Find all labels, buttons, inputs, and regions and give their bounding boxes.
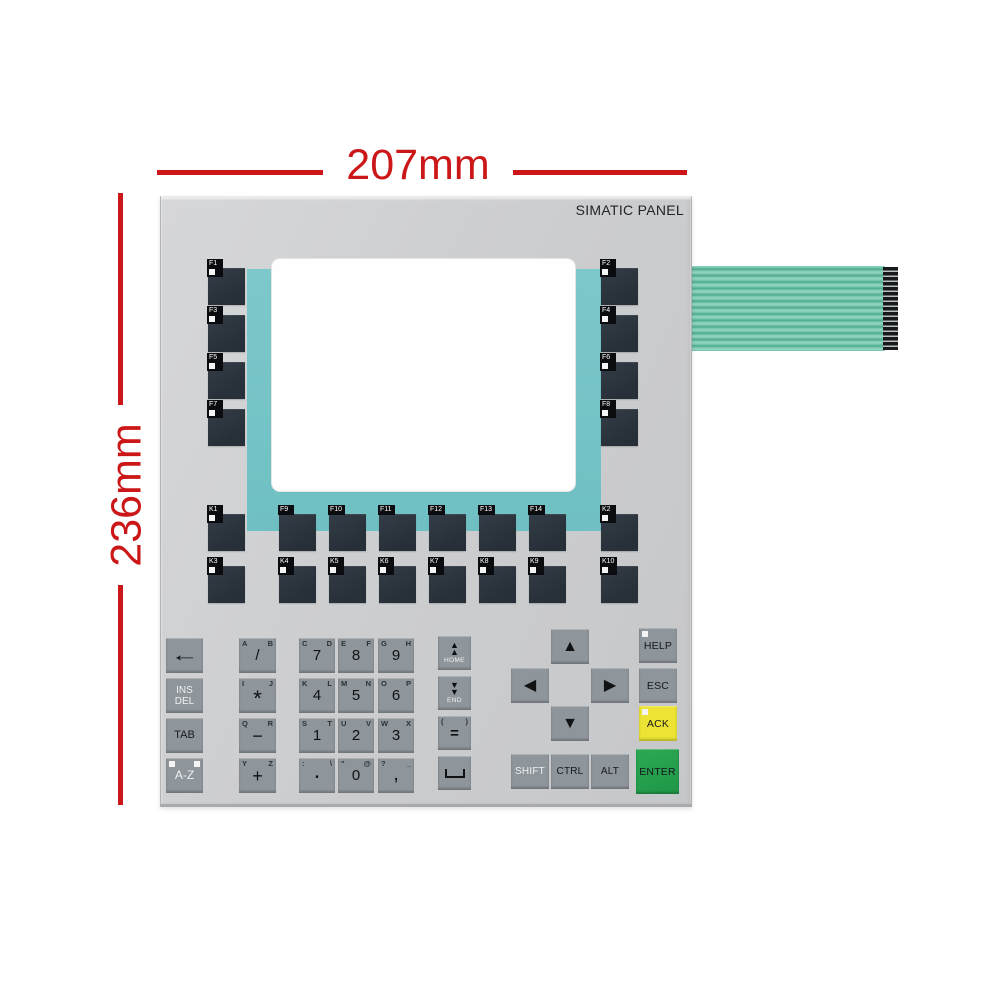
- key-symbol: 9: [392, 648, 400, 663]
- led-indicator-window: [602, 515, 608, 521]
- key-label: F10: [330, 506, 342, 514]
- key-label: K9: [530, 558, 541, 566]
- key-label: K5: [330, 558, 341, 566]
- height-dimension-line-bottom: [118, 585, 123, 805]
- key-label: K10: [602, 558, 614, 566]
- corner-letter: R: [268, 719, 273, 728]
- space-icon: [445, 769, 465, 778]
- key-symbol: .: [314, 759, 321, 783]
- key-label: K2: [602, 506, 613, 514]
- corner-letter: B: [268, 639, 273, 648]
- key-help[interactable]: HELP: [639, 628, 677, 663]
- key-label: K1: [209, 506, 220, 514]
- key-symbol: 3: [392, 728, 400, 743]
- up-triangle-icon: ▲: [562, 639, 578, 655]
- led-indicator-window: [642, 709, 648, 715]
- key-symbol: −: [252, 727, 263, 745]
- corner-letter: U: [341, 719, 346, 728]
- led-indicator-window: [602, 269, 608, 275]
- key-label: INS: [176, 685, 193, 696]
- key-5[interactable]: MN5: [338, 678, 374, 713]
- key-7[interactable]: CD7: [299, 638, 335, 673]
- backspace-arrow-icon: ←: [170, 646, 199, 665]
- key-label-tab: F2: [600, 259, 616, 277]
- down-triangle-icon: ▼: [562, 716, 578, 732]
- key-k8[interactable]: K8: [479, 566, 516, 603]
- key-k6[interactable]: K6: [379, 566, 416, 603]
- key-minus[interactable]: QR−: [239, 718, 276, 753]
- led-indicator-window: [530, 567, 536, 573]
- corner-letter: (: [441, 717, 444, 726]
- key-label: F14: [530, 506, 542, 514]
- key-k5[interactable]: K5: [329, 566, 366, 603]
- led-indicator-window: [169, 761, 175, 767]
- key-label: SHIFT: [515, 766, 545, 777]
- led-indicator-window: [430, 567, 436, 573]
- key-label-tab: F10: [328, 505, 345, 515]
- corner-letter: K: [302, 679, 307, 688]
- key-2[interactable]: UV2: [338, 718, 374, 753]
- corner-letter: Y: [242, 759, 247, 768]
- key-end[interactable]: ▼▼END: [438, 676, 471, 710]
- key-f6[interactable]: F6: [601, 362, 638, 399]
- corner-letter: Q: [242, 719, 248, 728]
- key-f11[interactable]: F11: [379, 514, 416, 551]
- corner-letter: O: [381, 679, 387, 688]
- key-label-tab: F9: [278, 505, 294, 515]
- height-dimension-label: 236mm: [106, 423, 149, 566]
- key-alt[interactable]: ALT: [591, 754, 629, 789]
- led-indicator-window: [194, 761, 200, 767]
- led-indicator-window: [209, 316, 215, 322]
- key-symbol: 4: [313, 688, 321, 703]
- corner-letter: :: [302, 759, 305, 768]
- led-indicator-window: [602, 316, 608, 322]
- key-symbol: +: [252, 767, 263, 785]
- flex-ribbon-cable: [680, 266, 899, 351]
- key-k3[interactable]: K3: [208, 566, 245, 603]
- key-label: F11: [380, 506, 392, 514]
- up-double-arrow-icon: ▲: [450, 649, 459, 656]
- corner-letter: W: [381, 719, 388, 728]
- led-indicator-window: [602, 567, 608, 573]
- corner-letter: E: [341, 639, 346, 648]
- key-label: F9: [280, 506, 291, 514]
- key-symbol: 7: [313, 648, 321, 663]
- key-label-tab: K6: [378, 557, 394, 575]
- key-label-tab: K9: [528, 557, 544, 575]
- led-indicator-window: [209, 515, 215, 521]
- corner-letter: Z: [268, 759, 273, 768]
- key-f5[interactable]: F5: [208, 362, 245, 399]
- key-symbol: 5: [352, 688, 360, 703]
- key-label: K8: [480, 558, 491, 566]
- corner-letter: I: [242, 679, 244, 688]
- corner-letter: _: [407, 759, 411, 768]
- key-k9[interactable]: K9: [529, 566, 566, 603]
- led-indicator-window: [209, 269, 215, 275]
- key-label-tab: F8: [600, 400, 616, 418]
- corner-letter: A: [242, 639, 247, 648]
- key-0[interactable]: "@0: [338, 758, 374, 793]
- key-slash[interactable]: AB/: [239, 638, 276, 673]
- key-label: ENTER: [639, 766, 676, 778]
- key-label-tab: K1: [207, 505, 223, 523]
- key-ins-del[interactable]: INSDEL: [166, 678, 203, 713]
- key-label: F1: [209, 260, 220, 268]
- ribbon-connector-contacts: [883, 267, 898, 350]
- key-shift[interactable]: SHIFT: [511, 754, 549, 789]
- key-label: ACK: [647, 718, 669, 730]
- key-label: ESC: [647, 680, 669, 692]
- key-8[interactable]: EF8: [338, 638, 374, 673]
- led-indicator-window: [209, 410, 215, 416]
- key-equals[interactable]: ()=: [438, 716, 471, 750]
- key-label-tab: F4: [600, 306, 616, 324]
- key-label-tab: F14: [528, 505, 545, 515]
- key-f3[interactable]: F3: [208, 315, 245, 352]
- key-tab[interactable]: TAB: [166, 718, 203, 753]
- key-label: CTRL: [557, 766, 584, 777]
- corner-letter: \: [330, 759, 332, 768]
- key-k4[interactable]: K4: [279, 566, 316, 603]
- key-k2[interactable]: K2: [601, 514, 638, 551]
- right-triangle-icon: ▶: [604, 678, 616, 694]
- led-indicator-window: [209, 567, 215, 573]
- key-label: F6: [602, 354, 613, 362]
- key-label-tab: F7: [207, 400, 223, 418]
- key-label: K4: [280, 558, 291, 566]
- key-label: F12: [430, 506, 442, 514]
- key-k7[interactable]: K7: [429, 566, 466, 603]
- width-dimension-label: 207mm: [328, 144, 508, 187]
- key-f1[interactable]: F1: [208, 268, 245, 305]
- key-f9[interactable]: F9: [279, 514, 316, 551]
- key-label-tab: K8: [478, 557, 494, 575]
- corner-letter: N: [366, 679, 371, 688]
- led-indicator-window: [602, 363, 608, 369]
- key-label-tab: F1: [207, 259, 223, 277]
- key-label-tab: F11: [378, 505, 395, 515]
- key-symbol: 2: [352, 728, 360, 743]
- corner-letter: T: [327, 719, 332, 728]
- corner-letter: G: [381, 639, 387, 648]
- key-asterisk[interactable]: IJ*: [239, 678, 276, 713]
- key-label: F4: [602, 307, 613, 315]
- key-f10[interactable]: F10: [329, 514, 366, 551]
- key-label: TAB: [174, 730, 195, 741]
- key-arrow-down[interactable]: ▼: [551, 706, 589, 741]
- key-label: F2: [602, 260, 613, 268]
- corner-letter: S: [302, 719, 307, 728]
- key-plus[interactable]: YZ+: [239, 758, 276, 793]
- left-triangle-icon: ◀: [524, 678, 536, 694]
- key-label: END: [447, 697, 462, 704]
- key-esc[interactable]: ESC: [639, 668, 677, 703]
- key-arrow-up[interactable]: ▲: [551, 629, 589, 664]
- key-label: K3: [209, 558, 220, 566]
- key-home[interactable]: ▲▲HOME: [438, 636, 471, 670]
- led-indicator-window: [380, 567, 386, 573]
- key-1[interactable]: ST1: [299, 718, 335, 753]
- corner-letter: X: [406, 719, 411, 728]
- key-space[interactable]: [438, 756, 471, 790]
- key-symbol: 8: [352, 648, 360, 663]
- led-indicator-window: [280, 567, 286, 573]
- key-f2[interactable]: F2: [601, 268, 638, 305]
- led-indicator-window: [330, 567, 336, 573]
- key-label-tab: K4: [278, 557, 294, 575]
- membrane-keypad-panel: SIMATIC PANEL F1F3F5F7F2F4F6F8K1F9F10F11…: [160, 196, 692, 807]
- key-label-tab: K7: [428, 557, 444, 575]
- key-symbol: 6: [392, 688, 400, 703]
- key-f7[interactable]: F7: [208, 409, 245, 446]
- key-symbol: 1: [313, 728, 321, 743]
- key-label: K7: [430, 558, 441, 566]
- key-f14[interactable]: F14: [529, 514, 566, 551]
- key-label: DEL: [175, 696, 194, 707]
- key-label-tab: K2: [600, 505, 616, 523]
- corner-letter: D: [327, 639, 332, 648]
- corner-letter: C: [302, 639, 307, 648]
- key-label-tab: K3: [207, 557, 223, 575]
- corner-letter: V: [366, 719, 371, 728]
- key-label: HOME: [444, 657, 465, 664]
- key-k10[interactable]: K10: [601, 566, 638, 603]
- key-symbol: 0: [352, 768, 360, 783]
- key-ctrl[interactable]: CTRL: [551, 754, 589, 789]
- key-label-tab: K10: [600, 557, 617, 575]
- key-label: F3: [209, 307, 220, 315]
- key-symbol: /: [255, 648, 259, 663]
- key-f4[interactable]: F4: [601, 315, 638, 352]
- key-label: ALT: [601, 766, 619, 777]
- key-ack[interactable]: ACK: [639, 706, 677, 741]
- key-label: F5: [209, 354, 220, 362]
- key-comma[interactable]: ?_,: [378, 758, 414, 793]
- corner-letter: J: [269, 679, 273, 688]
- display-window: [272, 259, 575, 491]
- key-6[interactable]: OP6: [378, 678, 414, 713]
- key-a-z[interactable]: A-Z: [166, 758, 203, 793]
- key-label: F7: [209, 401, 220, 409]
- key-f12[interactable]: F12: [429, 514, 466, 551]
- key-label-tab: F3: [207, 306, 223, 324]
- key-f8[interactable]: F8: [601, 409, 638, 446]
- key-arrow-left[interactable]: ◀: [511, 668, 549, 703]
- height-dimension-line-top: [118, 193, 123, 405]
- key-label: K6: [380, 558, 391, 566]
- key-3[interactable]: WX3: [378, 718, 414, 753]
- ribbon-wires: [680, 266, 885, 351]
- brand-label: SIMATIC PANEL: [576, 202, 684, 218]
- key-symbol: *: [253, 688, 262, 710]
- key-9[interactable]: GH9: [378, 638, 414, 673]
- key-f13[interactable]: F13: [479, 514, 516, 551]
- key-4[interactable]: KL4: [299, 678, 335, 713]
- key-label-tab: F13: [478, 505, 495, 515]
- led-indicator-window: [602, 410, 608, 416]
- corner-letter: ): [466, 717, 469, 726]
- corner-letter: ?: [381, 759, 386, 768]
- key-label-tab: K5: [328, 557, 344, 575]
- corner-letter: L: [327, 679, 332, 688]
- led-indicator-window: [642, 631, 648, 637]
- key-arrow-right[interactable]: ▶: [591, 668, 629, 703]
- key-backspace[interactable]: ←: [166, 638, 203, 673]
- product-photo: 207mm 236mm SIMATIC PANEL F1F3F5F7F2F4F6…: [0, 0, 1001, 1001]
- corner-letter: @: [364, 759, 371, 768]
- width-dimension-line-right: [513, 170, 687, 175]
- key-enter[interactable]: ENTER: [636, 749, 679, 794]
- key-label-tab: F5: [207, 353, 223, 371]
- width-dimension-line-left: [157, 170, 323, 175]
- led-indicator-window: [480, 567, 486, 573]
- key-label: F13: [480, 506, 492, 514]
- key-dot[interactable]: :\.: [299, 758, 335, 793]
- key-symbol: ,: [393, 764, 399, 784]
- down-double-arrow-icon: ▼: [450, 689, 459, 696]
- corner-letter: M: [341, 679, 347, 688]
- key-label-tab: F6: [600, 353, 616, 371]
- key-k1[interactable]: K1: [208, 514, 245, 551]
- corner-letter: ": [341, 759, 345, 768]
- key-label: F8: [602, 401, 613, 409]
- key-label: A-Z: [175, 770, 194, 781]
- led-indicator-window: [209, 363, 215, 369]
- key-label: HELP: [644, 640, 672, 652]
- key-symbol: =: [450, 726, 459, 741]
- corner-letter: P: [406, 679, 411, 688]
- corner-letter: F: [366, 639, 371, 648]
- corner-letter: H: [406, 639, 411, 648]
- key-label-tab: F12: [428, 505, 445, 515]
